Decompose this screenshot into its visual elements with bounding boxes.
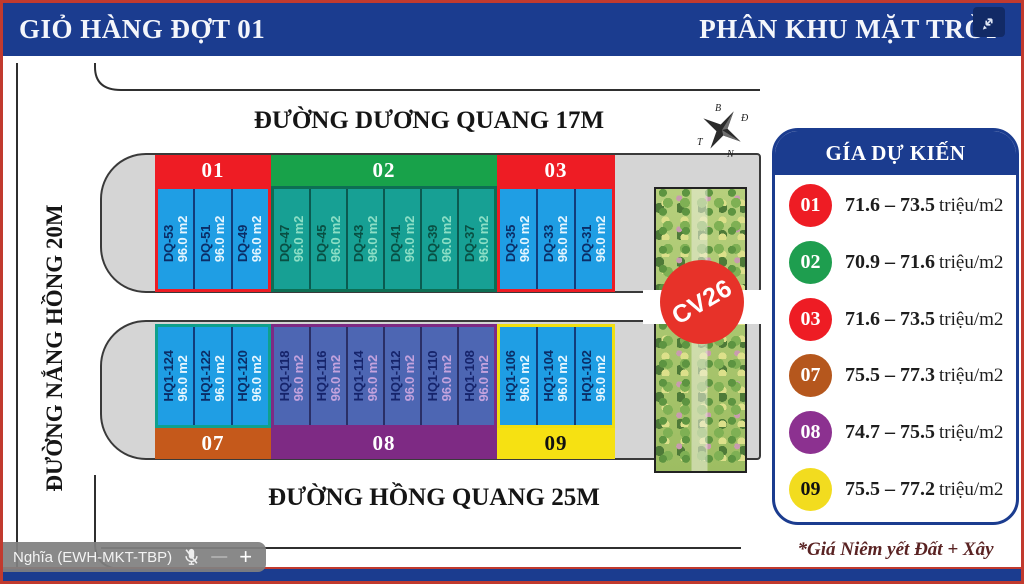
plot-label: HQ1-11296.0 m2	[389, 351, 417, 402]
plot-DQ-49: DQ-4996.0 m2	[233, 189, 268, 289]
price-range: 70.9 – 71.6 triệu/m2	[845, 251, 1003, 274]
plot-id: DQ-41	[389, 216, 403, 262]
plot-HQ1-124: HQ1-12496.0 m2	[158, 327, 193, 425]
screenshot-frame: GIỎ HÀNG ĐỢT 01 PHÂN KHU MẶT TRỜI CV26 Đ…	[0, 0, 1024, 584]
plot-area: 96.0 m2	[440, 216, 454, 262]
plot-id: HQ1-122	[199, 350, 213, 401]
plot-area: 96.0 m2	[403, 351, 417, 402]
block-07-label: 07	[155, 428, 271, 459]
street-name-top: ĐƯỜNG DƯƠNG QUANG 17M	[229, 107, 629, 135]
plot-DQ-43: DQ-4396.0 m2	[348, 189, 383, 289]
plot-HQ1-106: HQ1-10696.0 m2	[500, 327, 536, 425]
price-legend-panel: GÍA DỰ KIẾN 0171.6 – 73.5 triệu/m20270.9…	[772, 128, 1019, 525]
plot-id: DQ-35	[504, 216, 518, 262]
plot-label: HQ1-11696.0 m2	[315, 351, 343, 402]
plot-label: DQ-4596.0 m2	[315, 216, 343, 262]
plot-area: 96.0 m2	[440, 351, 454, 402]
enlarge-name-tag-button[interactable]: +	[239, 546, 252, 568]
plot-area: 96.0 m2	[594, 350, 608, 401]
plot-area: 96.0 m2	[292, 216, 306, 262]
plot-label: HQ1-11096.0 m2	[426, 351, 454, 402]
plot-area: 96.0 m2	[556, 350, 570, 401]
price-value: 75.5 – 77.2	[845, 478, 935, 500]
plot-label: DQ-4196.0 m2	[389, 216, 417, 262]
plot-DQ-51: DQ-5196.0 m2	[195, 189, 230, 289]
plot-id: DQ-53	[162, 216, 176, 262]
plot-HQ1-108: HQ1-10896.0 m2	[459, 327, 494, 425]
price-unit: triệu/m2	[939, 479, 1003, 500]
zone-badge: 07	[789, 354, 832, 397]
block-07-plots: HQ1-12496.0 m2HQ1-12296.0 m2HQ1-12096.0 …	[155, 324, 271, 428]
plot-area: 96.0 m2	[518, 216, 532, 262]
plot-label: HQ1-12096.0 m2	[236, 350, 264, 401]
plot-DQ-41: DQ-4196.0 m2	[385, 189, 420, 289]
plot-id: HQ1-104	[542, 350, 556, 401]
price-value: 70.9 – 71.6	[845, 251, 935, 273]
plot-HQ1-112: HQ1-11296.0 m2	[385, 327, 420, 425]
legend-title: GÍA DỰ KIẾN	[775, 131, 1016, 175]
compass-south-label: N	[726, 149, 735, 160]
block-09-label: 09	[497, 428, 615, 459]
street-name-left: ĐƯỜNG NẮNG HỒNG 20M	[42, 204, 68, 491]
plot-HQ1-114: HQ1-11496.0 m2	[348, 327, 383, 425]
compass-north-label: B	[715, 103, 721, 114]
block-01-plots: DQ-5396.0 m2DQ-5196.0 m2DQ-4996.0 m2	[155, 186, 271, 292]
plot-label: DQ-3396.0 m2	[542, 216, 570, 262]
plot-DQ-47: DQ-4796.0 m2	[274, 189, 309, 289]
zone-badge: 01	[789, 184, 832, 227]
plot-label: DQ-3796.0 m2	[463, 216, 491, 262]
plot-label: HQ1-10296.0 m2	[580, 350, 608, 401]
resize-cursor-icon[interactable]	[973, 7, 1005, 37]
plot-HQ1-120: HQ1-12096.0 m2	[233, 327, 268, 425]
legend-rows: 0171.6 – 73.5 triệu/m20270.9 – 71.6 triệ…	[775, 175, 1016, 522]
price-value: 71.6 – 73.5	[845, 194, 935, 216]
plot-area: 96.0 m2	[250, 350, 264, 401]
plot-area: 96.0 m2	[518, 350, 532, 401]
shrink-name-tag-button[interactable]: —	[211, 548, 227, 566]
compass-west-label: T	[697, 137, 704, 148]
park-badge-label: CV26	[667, 273, 737, 330]
plot-label: DQ-3196.0 m2	[580, 216, 608, 262]
zone-badge: 08	[789, 411, 832, 454]
legend-row-08: 0874.7 – 75.5 triệu/m2	[789, 411, 1016, 454]
mic-muted-icon	[184, 548, 199, 566]
block-02-label: 02	[271, 155, 497, 186]
plot-id: HQ1-102	[580, 350, 594, 401]
plot-area: 96.0 m2	[594, 216, 608, 262]
plot-label: DQ-3996.0 m2	[426, 216, 454, 262]
block-08-plots: HQ1-11896.0 m2HQ1-11696.0 m2HQ1-11496.0 …	[271, 324, 497, 428]
plot-area: 96.0 m2	[477, 216, 491, 262]
plot-area: 96.0 m2	[403, 216, 417, 262]
plot-HQ1-104: HQ1-10496.0 m2	[538, 327, 574, 425]
plot-id: HQ1-110	[426, 351, 440, 402]
plot-id: DQ-33	[542, 216, 556, 262]
plot-label: HQ1-11496.0 m2	[352, 351, 380, 402]
plot-DQ-45: DQ-4596.0 m2	[311, 189, 346, 289]
park-badge-cv26: CV26	[660, 260, 744, 344]
plot-DQ-31: DQ-3196.0 m2	[576, 189, 612, 289]
price-range: 71.6 – 73.5 triệu/m2	[845, 308, 1003, 331]
plot-id: DQ-31	[580, 216, 594, 262]
block-09-plots: HQ1-10696.0 m2HQ1-10496.0 m2HQ1-10296.0 …	[497, 324, 615, 428]
plot-id: HQ1-114	[352, 351, 366, 402]
price-value: 71.6 – 73.5	[845, 308, 935, 330]
plot-label: DQ-4996.0 m2	[236, 216, 264, 262]
plot-label: DQ-5396.0 m2	[162, 216, 190, 262]
block-08-label: 08	[271, 428, 497, 459]
plot-label: HQ1-11896.0 m2	[278, 351, 306, 402]
price-unit: triệu/m2	[939, 252, 1003, 273]
plot-id: DQ-39	[426, 216, 440, 262]
plot-area: 96.0 m2	[366, 351, 380, 402]
plot-DQ-33: DQ-3396.0 m2	[538, 189, 574, 289]
plot-DQ-35: DQ-3596.0 m2	[500, 189, 536, 289]
plot-HQ1-118: HQ1-11896.0 m2	[274, 327, 309, 425]
legend-footnote: *Giá Niêm yết Đất + Xây	[772, 539, 1019, 561]
plot-label: DQ-3596.0 m2	[504, 216, 532, 262]
legend-row-02: 0270.9 – 71.6 triệu/m2	[789, 241, 1016, 284]
street-name-bottom: ĐƯỜNG HỒNG QUANG 25M	[229, 484, 639, 512]
plot-label: HQ1-10896.0 m2	[463, 350, 491, 401]
plot-label: DQ-4396.0 m2	[352, 216, 380, 262]
compass-icon: B Đ N T	[691, 99, 753, 161]
plot-area: 96.0 m2	[329, 351, 343, 402]
plot-id: DQ-45	[315, 216, 329, 262]
price-unit: triệu/m2	[939, 422, 1003, 443]
plot-DQ-39: DQ-3996.0 m2	[422, 189, 457, 289]
block-03-label: 03	[497, 155, 615, 186]
price-range: 75.5 – 77.3 triệu/m2	[845, 364, 1003, 387]
plot-label: DQ-4796.0 m2	[278, 216, 306, 262]
price-unit: triệu/m2	[939, 195, 1003, 216]
plot-area: 96.0 m2	[477, 350, 491, 401]
plot-label: HQ1-12296.0 m2	[199, 350, 227, 401]
zone-badge: 09	[789, 468, 832, 511]
compass-east-label: Đ	[740, 113, 749, 124]
plot-id: DQ-47	[278, 216, 292, 262]
legend-row-03: 0371.6 – 73.5 triệu/m2	[789, 298, 1016, 341]
plot-label: HQ1-12496.0 m2	[162, 350, 190, 401]
legend-row-09: 0975.5 – 77.2 triệu/m2	[789, 468, 1016, 511]
plot-id: HQ1-116	[315, 351, 329, 402]
plot-id: HQ1-118	[278, 351, 292, 402]
block-02-plots: DQ-4796.0 m2DQ-4596.0 m2DQ-4396.0 m2DQ-4…	[271, 186, 497, 292]
plot-id: HQ1-112	[389, 351, 403, 402]
plot-DQ-53: DQ-5396.0 m2	[158, 189, 193, 289]
price-range: 75.5 – 77.2 triệu/m2	[845, 478, 1003, 501]
plot-area: 96.0 m2	[366, 216, 380, 262]
plot-id: DQ-43	[352, 216, 366, 262]
plot-HQ1-122: HQ1-12296.0 m2	[195, 327, 230, 425]
participant-name: Nghĩa (EWH-MKT-TBP)	[13, 549, 172, 566]
plot-area: 96.0 m2	[292, 351, 306, 402]
plot-id: DQ-51	[199, 216, 213, 262]
plot-id: HQ1-124	[162, 350, 176, 401]
plot-label: DQ-5196.0 m2	[199, 216, 227, 262]
plot-area: 96.0 m2	[250, 216, 264, 262]
price-unit: triệu/m2	[939, 365, 1003, 386]
plot-area: 96.0 m2	[213, 216, 227, 262]
legend-row-07: 0775.5 – 77.3 triệu/m2	[789, 354, 1016, 397]
plot-area: 96.0 m2	[556, 216, 570, 262]
price-unit: triệu/m2	[939, 309, 1003, 330]
plot-label: HQ1-10496.0 m2	[542, 350, 570, 401]
price-range: 71.6 – 73.5 triệu/m2	[845, 194, 1003, 217]
price-value: 74.7 – 75.5	[845, 421, 935, 443]
plot-DQ-37: DQ-3796.0 m2	[459, 189, 494, 289]
zone-badge: 03	[789, 298, 832, 341]
plot-id: HQ1-106	[504, 350, 518, 401]
zone-badge: 02	[789, 241, 832, 284]
plot-HQ1-116: HQ1-11696.0 m2	[311, 327, 346, 425]
plot-area: 96.0 m2	[176, 216, 190, 262]
plot-HQ1-102: HQ1-10296.0 m2	[576, 327, 612, 425]
plot-HQ1-110: HQ1-11096.0 m2	[422, 327, 457, 425]
block-03-plots: DQ-3596.0 m2DQ-3396.0 m2DQ-3196.0 m2	[497, 186, 615, 292]
legend-row-01: 0171.6 – 73.5 triệu/m2	[789, 184, 1016, 227]
plot-id: DQ-37	[463, 216, 477, 262]
plot-id: HQ1-108	[463, 350, 477, 401]
plot-area: 96.0 m2	[176, 350, 190, 401]
price-value: 75.5 – 77.3	[845, 364, 935, 386]
participant-name-pill: Nghĩa (EWH-MKT-TBP) — +	[3, 542, 266, 572]
block-01-label: 01	[155, 155, 271, 186]
plot-label: HQ1-10696.0 m2	[504, 350, 532, 401]
plot-area: 96.0 m2	[329, 216, 343, 262]
plot-area: 96.0 m2	[213, 350, 227, 401]
price-range: 74.7 – 75.5 triệu/m2	[845, 421, 1003, 444]
